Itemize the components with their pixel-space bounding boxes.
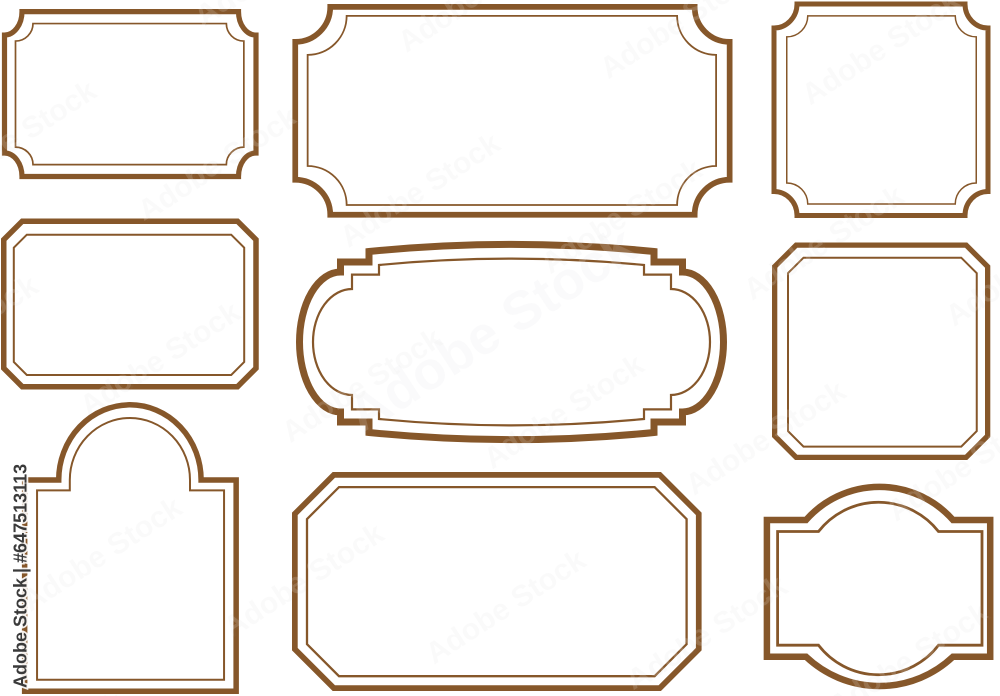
svg-text:Adobe Stock: Adobe Stock bbox=[130, 100, 302, 228]
svg-text:Adobe Stock: Adobe Stock bbox=[215, 516, 387, 644]
svg-text:Adobe Stock: Adobe Stock bbox=[793, 0, 965, 111]
svg-text:Adobe Stock: Adobe Stock bbox=[332, 126, 504, 254]
svg-text:Adobe Stock: Adobe Stock bbox=[677, 374, 849, 502]
svg-text:Adobe Stock: Adobe Stock bbox=[13, 490, 185, 618]
svg-text:Adobe Stock: Adobe Stock bbox=[0, 0, 161, 6]
svg-text:Adobe Stock: Adobe Stock bbox=[735, 178, 907, 306]
svg-text:Adobe Stock: Adobe Stock bbox=[475, 347, 647, 475]
svg-text:Adobe Stock: Adobe Stock bbox=[0, 0, 158, 6]
svg-text:Adobe Stock: Adobe Stock bbox=[417, 542, 589, 670]
svg-text:Adobe Stock: Adobe Stock bbox=[995, 10, 1000, 138]
svg-text:Adobe Stock | #647513113: Adobe Stock | #647513113 bbox=[11, 464, 31, 688]
svg-text:Adobe Stock: Adobe Stock bbox=[72, 295, 244, 423]
svg-text:Adobe Stock: Adobe Stock bbox=[937, 205, 1000, 333]
